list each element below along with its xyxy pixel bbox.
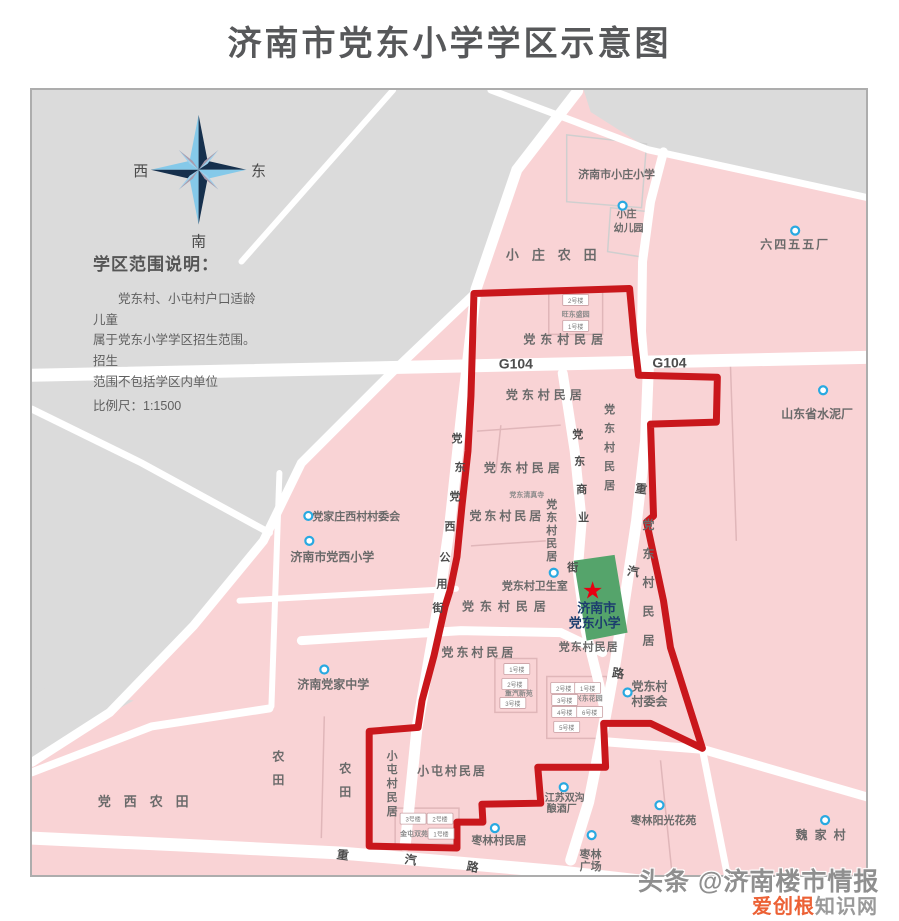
map-label: 枣林阳光花苑 <box>630 813 697 827</box>
map-label: 党东村民居 <box>462 599 552 614</box>
map-label: 村 <box>604 440 615 454</box>
road-label: 东 <box>454 460 465 474</box>
map-panel: ★ 济南市 党东小学 西 东 南 G104G104党东党西公用街党东商业街重汽路… <box>30 88 868 877</box>
map-label: 济南党家中学 <box>297 676 369 691</box>
page-title: 济南市党东小学学区示意图 <box>0 16 899 65</box>
map-label: 小庄 <box>616 208 637 221</box>
map-label: 小庄农田 <box>506 248 610 263</box>
map-label: 民 <box>604 460 615 473</box>
building-box-label: 3号楼 <box>405 816 420 824</box>
road-label: 重 <box>336 846 350 863</box>
map-label: 村 <box>387 776 398 790</box>
scale-label: 比例尺：1:1500 <box>93 395 263 414</box>
road-label: 路 <box>466 858 481 875</box>
building-box-label: 2号楼 <box>556 685 571 693</box>
map-label: 小 <box>386 748 398 762</box>
map-label: 农 <box>271 748 284 763</box>
poi-marker-icon <box>624 688 632 696</box>
map-label: 农 <box>338 760 351 775</box>
poi-marker-icon <box>491 824 499 832</box>
map-label: 魏家村 <box>795 827 853 842</box>
district-map: ★ 济南市 党东小学 西 东 南 G104G104党东党西公用街党东商业街重汽路… <box>32 90 866 875</box>
road-label: 党 <box>572 427 583 441</box>
poi-marker-icon <box>821 816 829 824</box>
legend-line-2: 属于党东小学学区招生范围。招生 <box>93 330 263 371</box>
building-box-label: 3号楼 <box>505 700 520 708</box>
map-label: 居 <box>604 479 615 492</box>
poi-marker-icon <box>320 666 328 674</box>
poi-marker-icon <box>560 783 568 791</box>
map-label: 党 <box>604 402 615 416</box>
map-label: 屯 <box>387 762 398 776</box>
poi-marker-icon <box>304 512 312 520</box>
school-name-line1: 济南市 <box>577 601 616 616</box>
district-scope-note: 学区范围说明： 党东村、小屯村户口适龄儿童 属于党东小学学区招生范围。招生 范围… <box>93 250 263 414</box>
road-label: G104 <box>652 354 686 370</box>
map-label: 旺东盛园 <box>562 309 590 318</box>
map-label: 党东村民居 <box>442 645 517 660</box>
compass-south-label: 南 <box>191 234 206 251</box>
map-label: 山东省水泥厂 <box>781 406 853 421</box>
road-label: 路 <box>611 665 626 682</box>
building-box-label: 5号楼 <box>559 724 574 732</box>
building-box-label: 4号楼 <box>557 709 572 717</box>
map-label: 村 <box>546 523 557 537</box>
map-label: 枣林村民居 <box>470 833 526 847</box>
map-label: 党东村 <box>632 678 668 693</box>
map-label: 兴东花园 <box>575 693 603 702</box>
road-label: 党 <box>450 489 461 503</box>
school-name-line2: 党东小学 <box>569 616 621 631</box>
map-label: 村 <box>643 575 655 590</box>
map-label: 党东村民居 <box>484 460 564 475</box>
map-label: 党东村民居 <box>559 640 619 654</box>
map-label: 党 <box>546 497 557 511</box>
road-label: 汽 <box>626 563 640 580</box>
road-label: 公 <box>440 551 451 564</box>
road-label: 重 <box>634 480 648 497</box>
map-label: 党东村民居 <box>469 508 544 523</box>
map-label: 广场 <box>580 859 602 873</box>
poi-marker-icon <box>656 801 664 809</box>
building-box-label: 1号楼 <box>433 831 448 839</box>
map-label: 党东村卫生室 <box>502 579 568 593</box>
map-label: 江苏双沟 <box>545 791 585 804</box>
school-parcels <box>567 135 649 258</box>
road-label: 街 <box>432 601 444 615</box>
map-label: 枣林 <box>579 847 602 861</box>
building-box-label: 1号楼 <box>509 666 524 674</box>
map-label: 济南市小庄小学 <box>578 167 655 181</box>
map-label: 民 <box>643 605 655 619</box>
legend-heading: 学区范围说明： <box>93 250 263 275</box>
map-label: 民 <box>387 791 398 804</box>
map-label: 居 <box>387 805 398 818</box>
road-label: 西 <box>445 520 456 533</box>
map-label: 民 <box>546 537 557 550</box>
map-label: 田 <box>272 773 284 787</box>
poi-marker-icon <box>305 537 313 545</box>
road-label: 用 <box>437 578 448 591</box>
building-box-label: 2号楼 <box>568 297 583 305</box>
map-label: 党东清真寺 <box>508 490 544 499</box>
map-label: 党家庄西村村委会 <box>312 509 400 523</box>
poi-marker-icon <box>588 831 596 839</box>
road-label: 汽 <box>404 851 418 868</box>
poi-marker-icon <box>619 202 627 210</box>
map-label: 田 <box>339 785 351 799</box>
map-label: 金屯双苑 <box>399 829 428 838</box>
building-box-label: 2号楼 <box>507 681 522 689</box>
map-label: 东 <box>604 421 615 435</box>
map-label: 居 <box>546 550 557 563</box>
compass-east-label: 东 <box>251 163 266 180</box>
building-box-label: 2号楼 <box>432 816 447 824</box>
watermark-brand-orange: 爱创根 <box>752 896 815 918</box>
road-label: 商 <box>576 482 587 496</box>
map-label: 党东村民居 <box>506 387 586 402</box>
map-label: 东 <box>546 510 557 524</box>
poi-marker-icon <box>550 569 558 577</box>
building-box-label: 3号楼 <box>557 697 572 705</box>
legend-line-3: 范围不包括学区内单位 <box>93 372 263 393</box>
road-label: 东 <box>574 454 585 468</box>
map-label: 村委会 <box>632 693 668 708</box>
building-box-label: 1号楼 <box>568 323 583 331</box>
road-label: G104 <box>499 355 533 371</box>
compass-west-label: 西 <box>133 163 148 180</box>
legend-line-1: 党东村、小屯村户口适龄儿童 <box>93 289 263 330</box>
map-label: 幼儿园 <box>614 222 644 235</box>
road-label: 党 <box>451 431 462 445</box>
map-label: 小屯村民居 <box>417 763 487 778</box>
road-label: 业 <box>578 510 589 524</box>
map-label: 六四五五厂 <box>760 237 830 252</box>
map-label: 济南市党西小学 <box>290 549 374 564</box>
map-label: 党 <box>643 517 655 532</box>
watermark-brand: 爱创根知识网 <box>752 890 878 919</box>
map-label: 居 <box>643 634 655 648</box>
map-label: 东 <box>643 546 655 561</box>
road-label: 街 <box>566 560 578 574</box>
map-label: 党西农田 <box>98 794 202 809</box>
building-box-label: 6号楼 <box>582 709 597 717</box>
poi-marker-icon <box>819 386 827 394</box>
poi-marker-icon <box>791 227 799 235</box>
map-label: 党东村民居 <box>523 331 608 346</box>
building-box-label: 1号楼 <box>580 685 595 693</box>
map-label: 酿酒厂 <box>547 802 577 815</box>
watermark-brand-gray: 知识网 <box>815 896 878 918</box>
